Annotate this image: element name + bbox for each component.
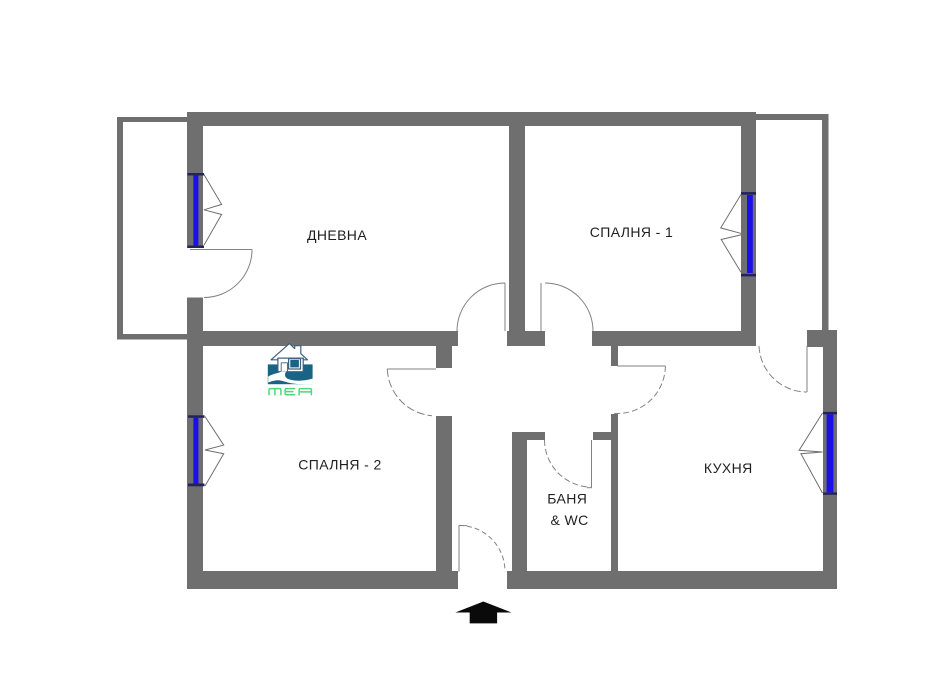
svg-text:СПАЛНЯ - 1: СПАЛНЯ - 1 xyxy=(590,224,673,240)
svg-text:& WC: & WC xyxy=(551,512,589,528)
svg-text:ДНЕВНА: ДНЕВНА xyxy=(307,227,367,243)
svg-text:КУХНЯ: КУХНЯ xyxy=(704,460,753,476)
svg-text:СПАЛНЯ - 2: СПАЛНЯ - 2 xyxy=(298,457,381,473)
svg-text:БАНЯ: БАНЯ xyxy=(547,491,587,507)
